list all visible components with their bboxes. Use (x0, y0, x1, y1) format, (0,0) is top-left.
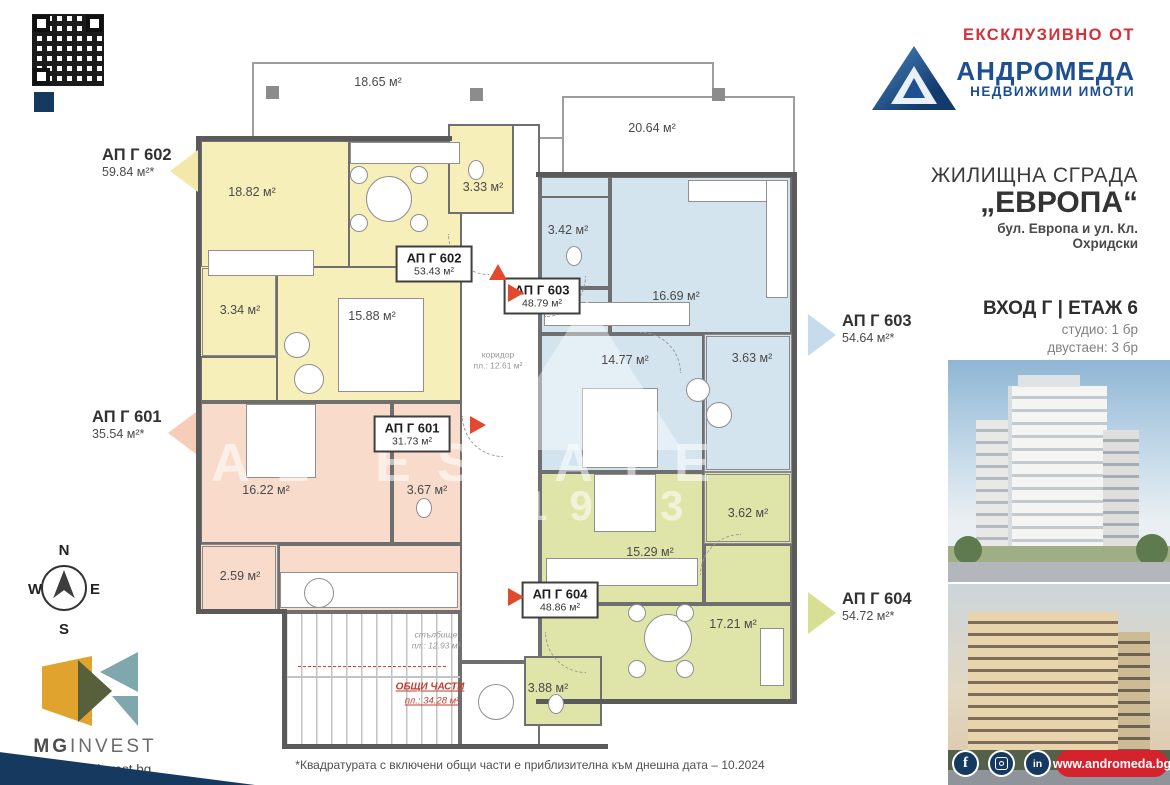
wall (196, 136, 452, 141)
qr-finder-icon (33, 68, 50, 85)
apartment-plan-area: 53.43 м² (407, 266, 462, 278)
furniture-sofa (760, 628, 784, 686)
column (712, 88, 725, 101)
area-603-balcony: 3.63 м² (732, 351, 773, 365)
entrance-arrow-icon (508, 588, 524, 606)
wall (196, 136, 201, 614)
furniture-chair (284, 332, 310, 358)
corridor-label: коридор пл.: 12.61 м² (474, 349, 523, 370)
furniture-bed (246, 404, 316, 478)
qr-code[interactable] (32, 14, 104, 86)
furniture-kitchen-counter (350, 142, 460, 164)
furniture-table (366, 176, 412, 222)
room-602-nook (200, 356, 278, 402)
furniture-chair (294, 364, 324, 394)
entrance-floor-label: ВХОД Г | ЕТАЖ 6 (928, 298, 1138, 320)
callout-arrow-604 (808, 592, 836, 634)
area-601-bath: 3.67 м² (407, 483, 448, 497)
footnote: *Квадратурата с включени общи части е пр… (230, 758, 830, 772)
furniture-chair (628, 604, 646, 622)
furniture-fan (478, 684, 514, 720)
area-604-living: 17.21 м² (709, 617, 757, 631)
mginvest-logo-icon (42, 652, 138, 728)
developer-name-invest: INVEST (70, 736, 157, 757)
agency-website: www.andromeda.bg (1053, 757, 1170, 771)
floorplan-brochure: ЕКСКЛУЗИВНО ОТ АНДРОМЕДА НЕДВИЖИМИ ИМОТИ… (0, 0, 1170, 785)
area-604-balcony: 3.62 м² (728, 506, 769, 520)
common-areas-title: ОБЩИ ЧАСТИ (396, 682, 465, 693)
project-name: „ЕВРОПА“ (928, 186, 1138, 220)
area-602-living: 18.82 м² (228, 185, 276, 199)
furniture-sofa (766, 180, 788, 298)
entrance-arrow-icon (470, 416, 486, 434)
stair-landing (284, 676, 460, 678)
agency-website-pill[interactable]: www.andromeda.bg (1056, 750, 1168, 777)
furniture-chair (706, 402, 732, 428)
agency-subtitle: НЕДВИЖИМИ ИМОТИ (930, 84, 1135, 99)
callout-604: АП Г 604 54.72 м²* (842, 590, 912, 623)
apartment-id: АП Г 602 (407, 251, 462, 266)
apartment-id: АП Г 604 (533, 587, 588, 602)
qr-finder-icon (86, 15, 103, 32)
callout-arrow-601 (168, 412, 196, 454)
fixture-toilet (548, 694, 564, 714)
fixture-toilet (416, 498, 432, 518)
callout-603: АП Г 603 54.64 м²* (842, 312, 912, 345)
exclusive-label: ЕКСКЛУЗИВНО ОТ (935, 26, 1135, 45)
furniture-stove-fan (304, 578, 334, 608)
room-602-living (200, 140, 350, 268)
furniture-chair (350, 214, 368, 232)
qr-finder-icon (33, 15, 50, 32)
furniture-chair (686, 378, 710, 402)
furniture-chair (350, 166, 368, 184)
callout-arrow-603 (808, 314, 836, 356)
callout-arrow-602 (170, 150, 198, 192)
compass-south: S (59, 621, 69, 638)
area-602-bedroom: 15.88 м² (348, 309, 396, 323)
stair-path (298, 666, 446, 667)
unit-mix-studio: студио: 1 бр (928, 322, 1138, 337)
project-type: ЖИЛИЩНА СГРАДА (928, 164, 1138, 188)
apartment-plan-area: 31.73 м² (385, 436, 440, 448)
column (470, 88, 483, 101)
wall (792, 172, 797, 704)
apartment-box-604: АП Г 604 48.86 м² (522, 582, 599, 619)
furniture-bed (594, 474, 656, 532)
project-address: бул. Европа и ул. Кл. Охридски (928, 221, 1138, 251)
area-602-balcony: 3.34 м² (220, 303, 261, 317)
furniture-chair (410, 214, 428, 232)
linkedin-glyph: in (1033, 758, 1042, 770)
instagram-icon[interactable] (988, 750, 1015, 777)
furniture-chair (676, 604, 694, 622)
furniture-chair (676, 660, 694, 678)
callout-601: АП Г 601 35.54 м²* (92, 408, 162, 441)
apartment-box-601: АП Г 601 31.73 м² (374, 416, 451, 453)
apartment-box-602: АП Г 602 53.43 м² (396, 246, 473, 283)
fixture-toilet (468, 160, 484, 180)
fixture-toilet (566, 246, 582, 266)
apartment-id: АП Г 601 (385, 421, 440, 436)
compass-north: N (59, 542, 70, 559)
compass-east: E (90, 581, 100, 598)
entrance-arrow-icon (489, 264, 507, 280)
compass-west: W (28, 581, 42, 598)
wall (282, 609, 287, 749)
wall (282, 744, 608, 749)
area-602-bath: 3.33 м² (463, 180, 504, 194)
common-areas-value: пл.: 34.28 м² (405, 696, 460, 707)
linkedin-icon[interactable]: in (1024, 750, 1051, 777)
area-604-bedroom: 15.29 м² (626, 545, 674, 559)
column (266, 86, 279, 99)
stairs-label: стълбище пл.: 12.93 м² (412, 629, 461, 650)
terrace-right (562, 96, 795, 176)
compass-icon: N W E S (28, 542, 100, 638)
instagram-glyph (995, 757, 1008, 770)
room-603-entry (540, 176, 610, 198)
agency-name: АНДРОМЕДА (930, 56, 1135, 87)
area-603-living: 16.69 м² (652, 289, 700, 303)
area-terrace-left: 18.65 м² (354, 75, 402, 89)
area-603-bedroom: 14.77 м² (601, 353, 649, 367)
decor-navy-square (34, 92, 54, 112)
furniture-sofa (208, 250, 314, 276)
developer-name-mg: MG (33, 736, 70, 757)
callout-602: АП Г 602 59.84 м²* (102, 146, 172, 179)
wall (536, 699, 797, 704)
wall (196, 609, 286, 614)
facebook-glyph: f (963, 755, 968, 772)
room-603-bath (540, 196, 610, 288)
apartment-plan-area: 48.86 м² (533, 602, 588, 614)
area-603-bath: 3.42 м² (548, 223, 589, 237)
wall (536, 172, 797, 177)
area-601-living: 16.22 м² (242, 483, 290, 497)
unit-mix-two-room: двустаен: 3 бр (928, 340, 1138, 355)
developer-name: MGINVEST (30, 736, 160, 758)
facebook-icon[interactable]: f (952, 750, 979, 777)
furniture-chair (410, 166, 428, 184)
furniture-chair (628, 660, 646, 678)
building-photo-day (948, 360, 1170, 582)
area-terrace-right: 20.64 м² (628, 121, 676, 135)
area-601-balcony: 2.59 м² (220, 569, 261, 583)
entrance-arrow-icon (508, 284, 524, 302)
area-604-bath: 3.88 м² (528, 681, 569, 695)
